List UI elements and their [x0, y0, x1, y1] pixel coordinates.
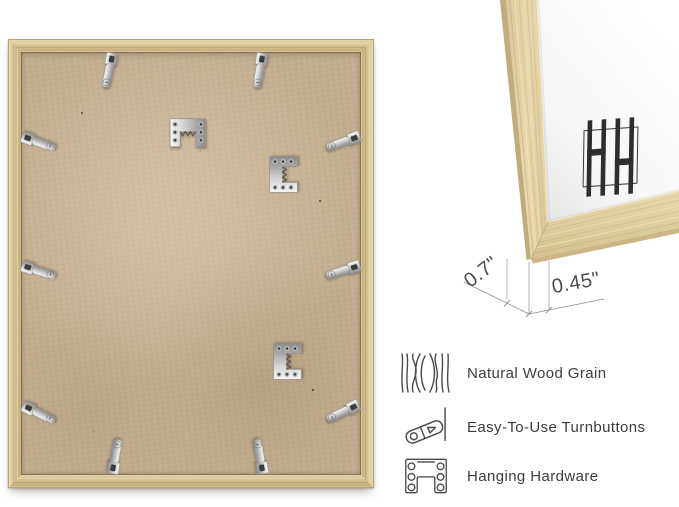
- feature-label: Easy-To-Use Turnbuttons: [467, 419, 645, 436]
- turnbutton: [20, 260, 57, 282]
- turnbutton: [251, 52, 269, 88]
- width-dimension-label: 0.45": [550, 268, 602, 298]
- feature-list: Natural Wood Grain Easy-To-Use Turnbutto…: [399, 351, 675, 498]
- feature-row-wood-grain: Natural Wood Grain: [399, 351, 675, 395]
- turnbutton: [325, 399, 362, 425]
- feature-row-turnbuttons: Easy-To-Use Turnbuttons: [399, 405, 675, 449]
- width-dimension-line: [529, 299, 604, 314]
- turnbutton-icon: [399, 405, 453, 449]
- sawtooth-hanger: [170, 119, 206, 147]
- depth-dimension-label: 0.7": [460, 252, 503, 292]
- frame-back-view: [8, 39, 374, 488]
- turnbutton: [325, 130, 362, 153]
- sawtooth-hanger: [274, 344, 302, 380]
- turnbutton: [21, 400, 58, 426]
- turnbutton: [20, 130, 57, 153]
- product-infographic: 0.7" 0.45" Natural Wood Grain: [0, 0, 679, 507]
- turnbutton: [325, 260, 362, 282]
- feature-label: Natural Wood Grain: [467, 365, 606, 382]
- dimension-annotation: 0.7" 0.45": [460, 252, 604, 317]
- feature-row-hanging-hardware: Hanging Hardware: [399, 454, 675, 498]
- turnbutton: [251, 438, 269, 474]
- wood-grain-icon: [399, 351, 453, 395]
- frame-front-face: [537, 0, 679, 222]
- turnbutton: [100, 52, 119, 89]
- turnbutton: [106, 438, 124, 474]
- corner-detail-view: 0.7" 0.45": [440, 0, 679, 330]
- hanging-hardware-icon: [399, 454, 453, 498]
- sawtooth-hanger: [270, 157, 298, 193]
- frame-hardware-layer: [9, 40, 373, 487]
- feature-label: Hanging Hardware: [467, 468, 598, 485]
